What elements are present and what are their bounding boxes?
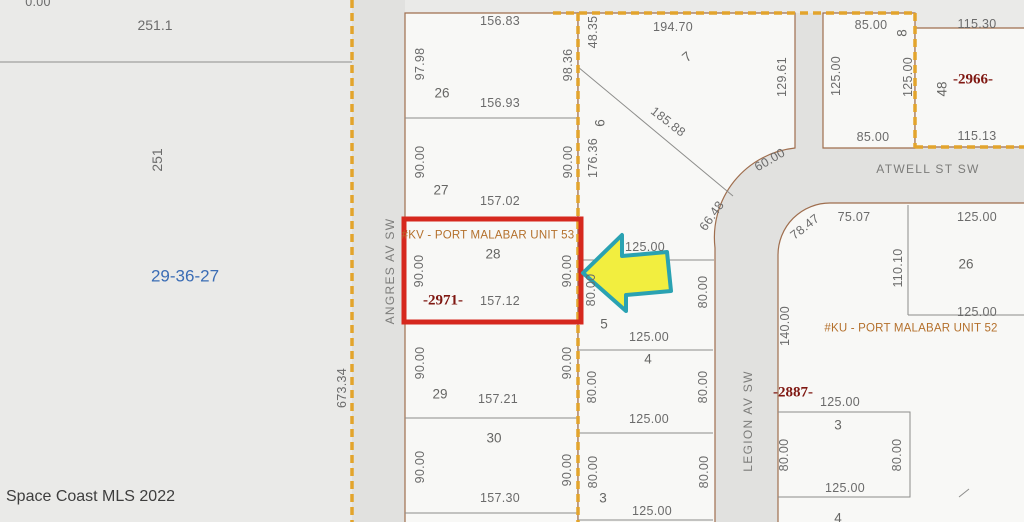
dimension-label-125-00: 125.00 — [830, 56, 843, 96]
lot-blocks — [405, 13, 1024, 522]
dimension-label-125-00: 125.00 — [629, 331, 669, 344]
street-name-legion-av-sw: LEGION AV SW — [742, 370, 754, 471]
section-number-29-36-27: 29-36-27 — [151, 268, 219, 285]
dimension-label-251-1: 251.1 — [137, 18, 172, 32]
dimension-label-80-00: 80.00 — [891, 439, 904, 472]
street-name-angres-av-sw: ANGRES AV SW — [384, 218, 396, 325]
dimension-label-0-00: 0.00 — [25, 0, 51, 8]
lot-number-48: 48 — [935, 81, 949, 96]
dimension-label-90-00: 90.00 — [413, 255, 426, 288]
dimension-label-125-00: 125.00 — [902, 57, 915, 97]
lot-number-28: 28 — [485, 247, 500, 261]
dimension-label-125-00: 125.00 — [629, 413, 669, 426]
plat-map-canvas: 0.00251.125129-36-2797.98156.8326156.939… — [0, 0, 1024, 522]
lot-number-8: 8 — [895, 29, 909, 37]
lot-number-30: 30 — [486, 431, 501, 445]
dimension-label-90-00: 90.00 — [414, 347, 427, 380]
dimension-label-156-83: 156.83 — [480, 15, 520, 28]
dimension-label-90-00: 90.00 — [561, 347, 574, 380]
lot-number-5: 5 — [600, 317, 608, 331]
dimension-label-75-07: 75.07 — [838, 211, 871, 224]
dimension-label-90-00: 90.00 — [561, 255, 574, 288]
dimension-label-80-00: 80.00 — [586, 371, 599, 404]
dimension-label-125-00: 125.00 — [957, 211, 997, 224]
dimension-label-85-00: 85.00 — [857, 131, 890, 144]
angres-av-road — [352, 0, 405, 522]
dimension-label-90-00: 90.00 — [414, 146, 427, 179]
dimension-label-80-00: 80.00 — [585, 274, 598, 307]
dimension-label-97-98: 97.98 — [414, 48, 427, 81]
lot-number-4: 4 — [834, 511, 842, 522]
lot-number-26: 26 — [434, 86, 449, 100]
mls-number-2887: -2887- — [773, 386, 813, 401]
mls-number-2966: -2966- — [953, 73, 993, 88]
dimension-label-125-00: 125.00 — [625, 241, 665, 254]
dimension-label-157-02: 157.02 — [480, 195, 520, 208]
dimension-label-90-00: 90.00 — [561, 454, 574, 487]
dimension-label-157-12: 157.12 — [480, 295, 520, 308]
dimension-label-115-13: 115.13 — [957, 130, 996, 143]
lot-number-3: 3 — [599, 491, 607, 505]
dimension-label-98-36: 98.36 — [562, 49, 575, 82]
block-lots-26-30 — [405, 13, 578, 522]
dimension-label-85-00: 85.00 — [855, 19, 888, 32]
lot-number-26: 26 — [958, 257, 973, 271]
dimension-label-125-00: 125.00 — [820, 396, 860, 409]
dimension-label-80-00: 80.00 — [697, 276, 710, 309]
dimension-label-48-35: 48.35 — [587, 16, 600, 49]
street-name-atwell-st-sw: ATWELL ST SW — [876, 163, 979, 175]
dimension-label-125-00: 125.00 — [957, 306, 997, 319]
dimension-label-125-00: 125.00 — [632, 505, 672, 518]
dimension-label-80-00: 80.00 — [698, 456, 711, 489]
lot-number-29: 29 — [432, 387, 447, 401]
dimension-label-125-00: 125.00 — [825, 482, 865, 495]
dimension-label-80-00: 80.00 — [587, 456, 600, 489]
plat-unit-label-kv-port-malabar-unit-53: #KV - PORT MALABAR UNIT 53 — [402, 230, 575, 242]
dimension-label-176-36: 176.36 — [587, 138, 600, 178]
dimension-label-90-00: 90.00 — [414, 451, 427, 484]
dimension-label-80-00: 80.00 — [697, 371, 710, 404]
lot-number-3: 3 — [834, 418, 842, 432]
dimension-label-140-00: 140.00 — [779, 306, 792, 346]
plat-map-drawing — [0, 0, 1024, 522]
plat-unit-label-ku-port-malabar-unit-52: #KU - PORT MALABAR UNIT 52 — [824, 323, 997, 335]
dimension-label-90-00: 90.00 — [562, 146, 575, 179]
lot-number-4: 4 — [644, 352, 652, 366]
dimension-label-194-70: 194.70 — [653, 21, 693, 34]
mls-number-2971: -2971- — [423, 294, 463, 309]
dimension-label-115-30: 115.30 — [957, 18, 996, 31]
dimension-label-157-30: 157.30 — [480, 492, 520, 505]
lot-number-6: 6 — [593, 119, 607, 127]
dimension-label-156-93: 156.93 — [480, 97, 520, 110]
dimension-label-673-34: 673.34 — [336, 368, 349, 408]
dimension-label-251: 251 — [150, 148, 164, 171]
watermark-space-coast-mls-2022: Space Coast MLS 2022 — [6, 489, 175, 505]
dimension-label-110-10: 110.10 — [892, 248, 905, 287]
dimension-label-157-21: 157.21 — [478, 393, 518, 406]
dimension-label-80-00: 80.00 — [778, 439, 791, 472]
lot-number-27: 27 — [433, 183, 448, 197]
dimension-label-129-61: 129.61 — [776, 57, 789, 97]
